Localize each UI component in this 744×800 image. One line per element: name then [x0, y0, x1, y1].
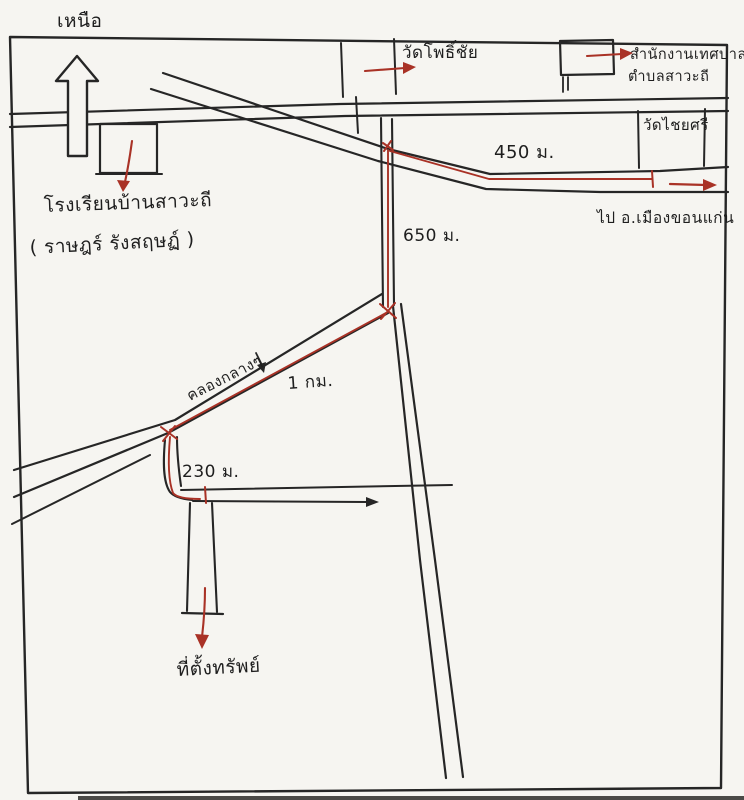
municipality-label-line2: ตำบลสาวะถี [628, 68, 709, 85]
east-lane-lower-edge [193, 501, 368, 502]
school-name-label: โรงเรียนบ้านสาวะถี [43, 188, 212, 217]
driveway-base-line [182, 613, 223, 614]
south-road-left-edge [393, 306, 446, 778]
road-name-label: คลองกลางๆ [184, 351, 265, 404]
wat-chai-si-plot-left [638, 111, 639, 168]
wat-pho-chai-arrow-shaft [365, 68, 405, 71]
distance-650m-label: 650 ม. [403, 226, 460, 246]
boundary-line-2 [394, 39, 396, 94]
wat-pho-chai-arrowhead [403, 62, 416, 74]
distance-230m-label: 230 ม. [182, 462, 239, 482]
school-arrowhead [117, 180, 130, 192]
route-450m-end-tick [652, 171, 653, 187]
school-subtitle-label: ( ราษฎร์ รังสฤษฏ์ ) [29, 228, 195, 259]
road-450m-upper-edge [388, 149, 728, 174]
driveway-left-edge [187, 503, 190, 611]
scan-edge-artifact [78, 796, 744, 800]
wat-pho-chai-label: วัดโพธิ์ชัย [402, 40, 478, 63]
south-road-right-edge [401, 304, 463, 777]
route-1km-segment [170, 313, 386, 430]
hand-drawn-location-map: เหนือ โรงเรียนบ้านสาวะถี ( ราษฎร์ รังสฤษ… [0, 0, 744, 800]
map-border-frame [10, 37, 727, 793]
distance-1km-label: 1 กม. [287, 371, 334, 394]
north-arrow-icon [56, 56, 98, 156]
boundary-line-1 [341, 43, 343, 97]
nw-diagonal-road-upper-edge [163, 73, 388, 149]
driveway-right-edge [212, 503, 217, 612]
wat-chai-si-label: วัดไชยศรี [643, 116, 709, 134]
property-arrowhead [195, 634, 209, 649]
nw-diagonal-and-450m-road-lower-edge [151, 89, 728, 192]
property-location-label: ที่ตั้งทรัพย์ [176, 652, 261, 681]
route-khon-kaen-arrowhead [703, 179, 717, 191]
route-khon-kaen-arrow-shaft [670, 184, 706, 185]
school-arrow-shaft [125, 141, 132, 182]
map-canvas: เหนือ โรงเรียนบ้านสาวะถี ( ราษฎร์ รังสฤษ… [0, 0, 744, 800]
boundary-line-3 [356, 97, 358, 133]
distance-450m-label: 450 ม. [494, 142, 555, 163]
route-230m-end-tick [205, 487, 206, 503]
municipality-building-box [560, 40, 614, 75]
municipality-arrow-shaft [587, 54, 622, 56]
spur-230m-right-edge [177, 437, 181, 486]
municipality-label-line1: สำนักงานเทศบาล [630, 47, 744, 63]
road-650m-right-edge [392, 119, 394, 305]
to-khon-kaen-label: ไป อ.เมืองขอนแก่น [595, 209, 734, 227]
compass-north-label: เหนือ [57, 10, 102, 32]
east-lane-arrowhead [366, 497, 379, 507]
